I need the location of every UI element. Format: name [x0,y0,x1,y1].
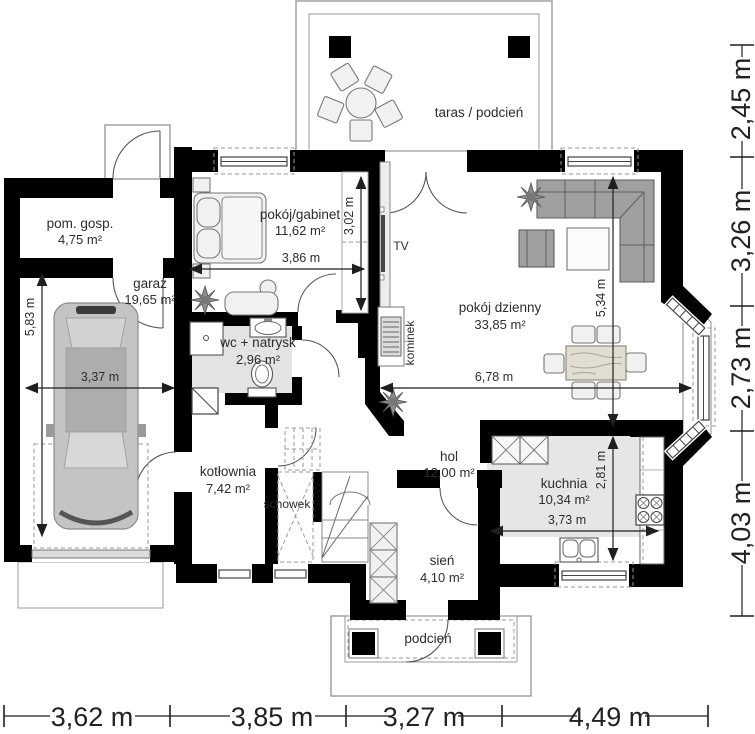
dim-living-depth: 5,34 m [594,279,608,317]
armchair-living [519,230,554,267]
sink [560,538,598,562]
dim-living-width: 6,78 m [475,370,513,384]
kitchen-tall-cabinets [492,436,548,464]
window-bedroom [214,148,294,174]
window-living [561,148,638,174]
terrace-label: taras / podcień [435,105,524,120]
dim-kitchen-depth: 2,81 m [594,451,608,489]
bed [193,178,266,278]
room-sien-name: sień [430,553,455,568]
plant [517,183,545,211]
dim-bottom-2: 3,85 m [231,702,314,732]
fireplace-label: kominek [403,320,417,366]
porch-column [478,632,501,655]
room-pokoj-dzienny-name: pokój dzienny [459,300,542,315]
dim-right-1: 2,45 m [726,58,755,141]
floor-plan-svg: taras / podcień podcień [0,0,755,734]
room-pom-gosp-area: 4,75 m² [58,232,103,247]
car [34,303,148,548]
window-kitchen [555,562,633,587]
room-wc-name: wc + natrysk [219,335,296,350]
tv-cabinet [380,162,390,313]
room-kotlownia-name: kotłownia [200,464,257,479]
fireplace [378,307,404,366]
dim-bottom-1: 3,62 m [51,702,134,732]
terrace-table-set [317,63,403,141]
dim-right-4: 4,03 m [726,482,755,565]
room-garaz-area: 19,65 m² [124,292,176,307]
dim-kitchen-width: 3,73 m [548,513,586,527]
dim-right-3: 2,73 m [726,327,755,410]
room-kotlownia-area: 7,42 m² [206,481,251,496]
porch-label: podcień [404,631,451,646]
room-hol-name: hol [440,449,458,464]
room-pokoj-gabinet-name: pokój/gabinet [260,207,341,222]
label-schowek: schowek [264,497,312,511]
south-porch: podcień [331,616,531,696]
stairs [285,428,370,562]
room-pom-gosp-name: pom. gosp. [47,216,114,231]
terrace-column [508,36,530,58]
outer-dimensions-bottom: 3,62 m 3,85 m 3,27 m 4,49 m [4,702,708,732]
armchair-bedroom [225,280,278,315]
room-pokoj-gabinet-area: 11,62 m² [275,223,326,238]
dim-right-2: 3,26 m [726,190,755,273]
floor-plan: taras / podcień podcień [0,0,755,734]
dim-garage-width: 3,37 m [81,370,119,384]
duct-shaft [192,388,218,414]
porch-column [352,632,375,655]
room-garaz-name: garaż [133,276,167,291]
coffee-table [567,228,609,270]
room-kuchnia-area: 10,34 m² [538,492,590,507]
room-hol-area: 12,00 m² [423,465,475,480]
dim-garage-depth: 5,83 m [23,298,37,336]
outer-dimensions-right: 2,45 m 3,26 m 2,73 m 4,03 m [726,45,755,616]
stove [636,495,664,525]
dim-bottom-3: 3,27 m [383,702,466,732]
dim-bedroom-width: 3,86 m [282,251,320,265]
terrace-column [329,36,351,58]
dim-bedroom-depth: 3,02 m [342,197,356,235]
tv-label: TV [393,239,408,253]
dim-bottom-4: 4,49 m [569,702,652,732]
wardrobe [370,523,397,603]
room-sien-area: 4,10 m² [420,570,465,585]
plant [191,286,219,314]
room-wc-area: 2,96 m² [236,352,281,367]
window-boiler-room [217,565,252,582]
plant [379,388,407,416]
room-kuchnia-name: kuchnia [541,476,588,491]
garage-apron [18,562,163,608]
under-stair-storage [278,472,313,562]
shower [190,322,223,355]
terrace: taras / podcień [296,1,552,151]
window-storage [273,565,308,582]
room-pokoj-dzienny-area: 33,85 m² [474,317,526,332]
bedroom-strip [342,172,368,313]
